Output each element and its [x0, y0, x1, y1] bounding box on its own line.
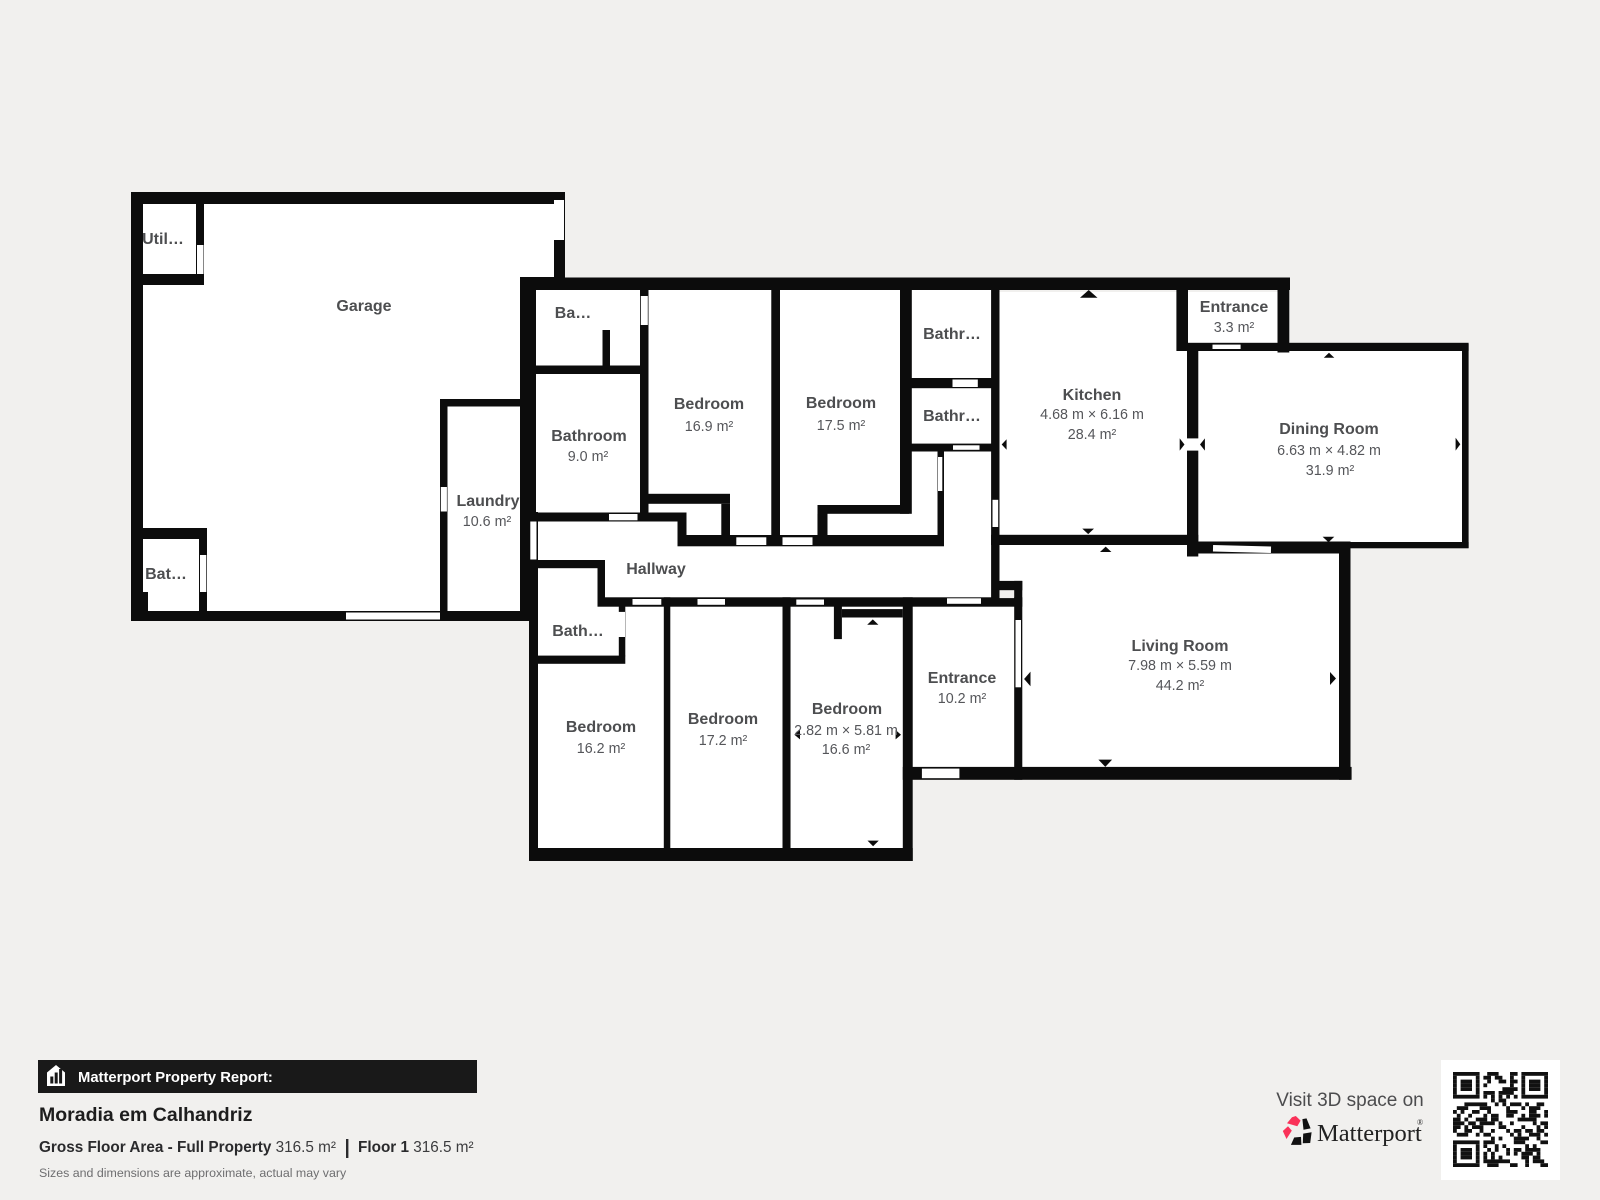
svg-text:2.82 m × 5.81 m: 2.82 m × 5.81 m	[794, 723, 898, 739]
svg-text:Bedroom: Bedroom	[812, 701, 882, 718]
svg-text:17.5 m²: 17.5 m²	[817, 418, 866, 434]
svg-text:Bathroom: Bathroom	[551, 428, 627, 445]
svg-text:3.3 m²: 3.3 m²	[1214, 320, 1255, 336]
svg-text:Entrance: Entrance	[928, 670, 997, 687]
svg-text:28.4 m²: 28.4 m²	[1068, 427, 1117, 443]
svg-text:9.0 m²: 9.0 m²	[568, 449, 609, 465]
svg-text:®: ®	[1417, 1118, 1423, 1127]
svg-text:Bathr…: Bathr…	[923, 408, 981, 425]
svg-text:Visit 3D space on: Visit 3D space on	[1276, 1090, 1424, 1111]
svg-text:Moradia em Calhandriz: Moradia em Calhandriz	[39, 1104, 253, 1126]
svg-text:10.6 m²: 10.6 m²	[463, 514, 512, 530]
svg-text:31.9 m²: 31.9 m²	[1306, 463, 1355, 479]
svg-text:17.2 m²: 17.2 m²	[699, 733, 748, 749]
svg-text:Bath…: Bath…	[552, 623, 604, 640]
svg-text:Util…: Util…	[142, 231, 184, 248]
svg-text:10.2 m²: 10.2 m²	[938, 691, 987, 707]
svg-text:6.63 m × 4.82 m: 6.63 m × 4.82 m	[1277, 443, 1381, 459]
svg-text:7.98 m × 5.59 m: 7.98 m × 5.59 m	[1128, 658, 1232, 674]
svg-text:Floor 1 316.5 m²: Floor 1 316.5 m²	[358, 1139, 474, 1156]
svg-text:Bedroom: Bedroom	[688, 711, 758, 728]
svg-text:Matterport: Matterport	[1317, 1120, 1422, 1147]
svg-text:Garage: Garage	[336, 298, 391, 315]
svg-text:16.6 m²: 16.6 m²	[822, 742, 871, 758]
svg-text:Bedroom: Bedroom	[566, 719, 636, 736]
svg-text:Bedroom: Bedroom	[806, 395, 876, 412]
svg-text:Hallway: Hallway	[626, 561, 686, 578]
svg-text:16.2 m²: 16.2 m²	[577, 741, 626, 757]
svg-text:Ba…: Ba…	[555, 305, 591, 322]
svg-text:Sizes and dimensions are appro: Sizes and dimensions are approximate, ac…	[39, 1166, 347, 1180]
svg-text:Dining Room: Dining Room	[1279, 421, 1379, 438]
svg-text:44.2 m²: 44.2 m²	[1156, 678, 1205, 694]
svg-text:Bat…: Bat…	[145, 566, 187, 583]
svg-text:Gross Floor Area - Full Proper: Gross Floor Area - Full Property 316.5 m…	[39, 1139, 336, 1156]
svg-text:Kitchen: Kitchen	[1063, 387, 1122, 404]
svg-text:Matterport Property Report:: Matterport Property Report:	[78, 1070, 273, 1086]
svg-text:Living Room: Living Room	[1132, 638, 1229, 655]
svg-text:Bathr…: Bathr…	[923, 326, 981, 343]
svg-text:4.68 m × 6.16 m: 4.68 m × 6.16 m	[1040, 407, 1144, 423]
svg-text:Entrance: Entrance	[1200, 299, 1269, 316]
svg-text:16.9 m²: 16.9 m²	[685, 419, 734, 435]
svg-text:Laundry: Laundry	[456, 493, 519, 510]
svg-text:Bedroom: Bedroom	[674, 396, 744, 413]
